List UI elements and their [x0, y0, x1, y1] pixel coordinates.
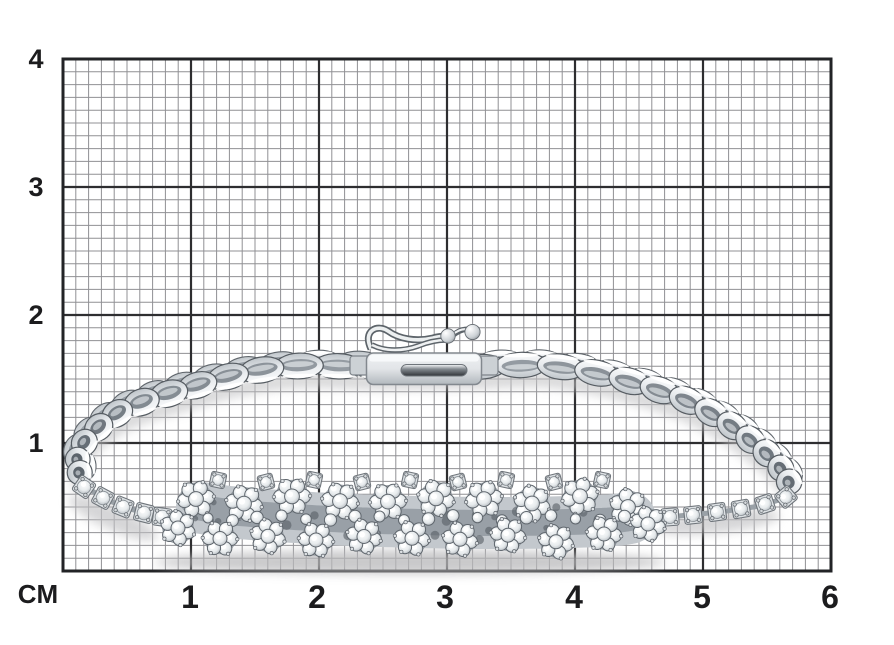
svg-text:5: 5 [693, 579, 711, 615]
svg-text:4: 4 [565, 579, 583, 615]
svg-text:4: 4 [28, 44, 43, 74]
svg-text:2: 2 [28, 300, 43, 330]
svg-text:1: 1 [28, 428, 43, 458]
svg-text:6: 6 [821, 579, 839, 615]
svg-text:3: 3 [436, 579, 454, 615]
svg-text:2: 2 [308, 579, 326, 615]
svg-text:1: 1 [181, 579, 199, 615]
svg-text:CM: CM [18, 579, 58, 609]
svg-text:3: 3 [28, 172, 43, 202]
